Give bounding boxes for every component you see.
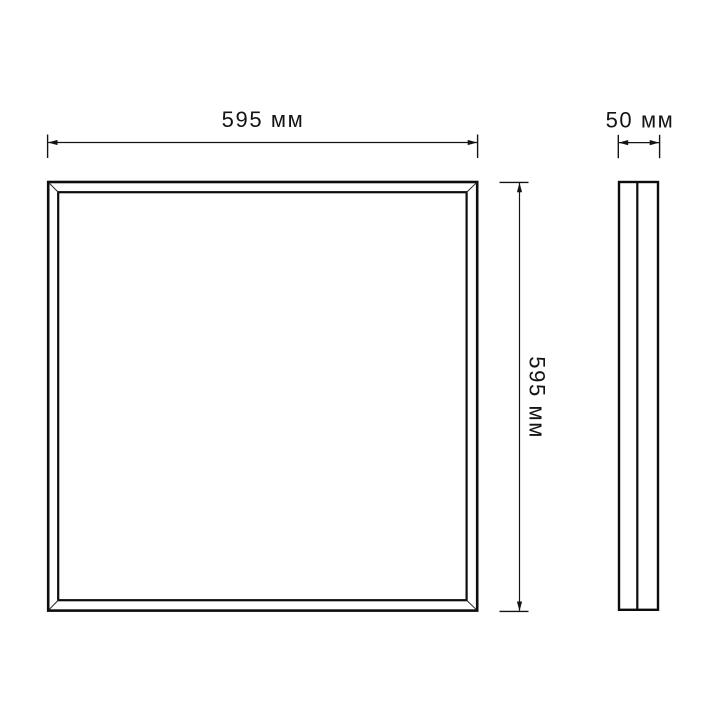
svg-text:595 мм: 595 мм <box>524 356 549 439</box>
svg-text:50 мм: 50 мм <box>606 107 675 132</box>
svg-text:595 мм: 595 мм <box>222 107 305 132</box>
